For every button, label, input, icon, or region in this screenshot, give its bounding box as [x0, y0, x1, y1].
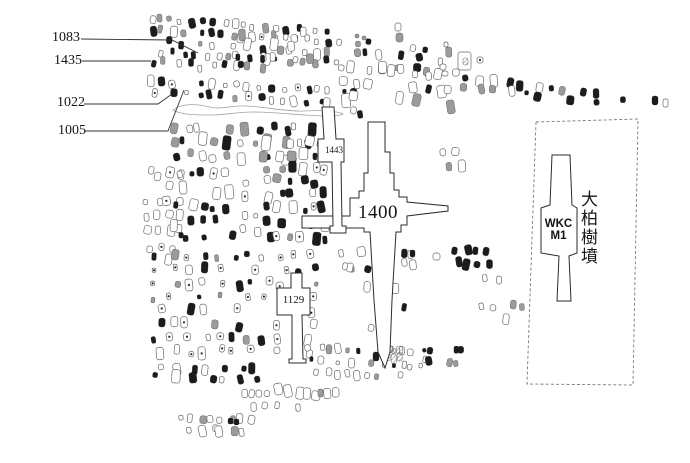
pit-field-bottom-oval-row	[242, 383, 339, 401]
pit-field-east-open-row	[479, 300, 525, 311]
cemetery-map: 1083 1435 1022 1005 1443 1400 1129 WKC M…	[0, 0, 690, 463]
label-tomb-wkc-m1: WKC M1	[540, 219, 577, 242]
pit-field-trio-open	[342, 262, 354, 272]
leader-line-1022	[84, 94, 172, 104]
label-tomb-1443: 1443	[321, 146, 347, 155]
pit-field-far-east-row	[460, 74, 626, 105]
label-tomb-1083: 1083	[46, 31, 80, 45]
label-tomb-1022: 1022	[51, 96, 85, 110]
pit-field-field-bottom-dark	[152, 362, 260, 384]
pit-field-under-arm-cluster	[440, 147, 466, 172]
wkc-line-1: WKC	[540, 219, 577, 231]
label-tomb-1005: 1005	[52, 124, 86, 138]
pit-field-east-dark-trio	[503, 314, 510, 325]
label-tomb-1400: 1400	[350, 203, 406, 222]
pit-field-field-mid-right	[263, 161, 330, 246]
ditch-outline	[173, 105, 343, 116]
label-tomb-1435: 1435	[48, 54, 82, 68]
wkc-line-2: M1	[540, 231, 577, 243]
pit-field-bottom-left-light	[179, 413, 256, 437]
label-tomb-1129: 1129	[277, 295, 310, 306]
pit-field-se-gray-pair	[446, 358, 458, 367]
pit-field-top-right-rows	[238, 29, 452, 76]
pit-field-east-small-opens	[482, 274, 501, 284]
pit-field-ditch-end-cluster	[350, 107, 363, 119]
pit-field-left-light-column	[143, 166, 187, 266]
pit-field-dark-cluster-mid	[221, 53, 266, 73]
pit-field-tip-light-row	[313, 368, 403, 381]
pit-field-bottom-oval-row-2	[251, 402, 301, 412]
label-site-name: 大柏樹墳	[579, 190, 596, 280]
pit-field-tip-band	[304, 343, 426, 371]
pit-field-east-dark-cluster	[451, 244, 492, 271]
pit-field-field-mid-gap	[239, 180, 261, 237]
pit-field-se-dark-row	[454, 346, 464, 353]
